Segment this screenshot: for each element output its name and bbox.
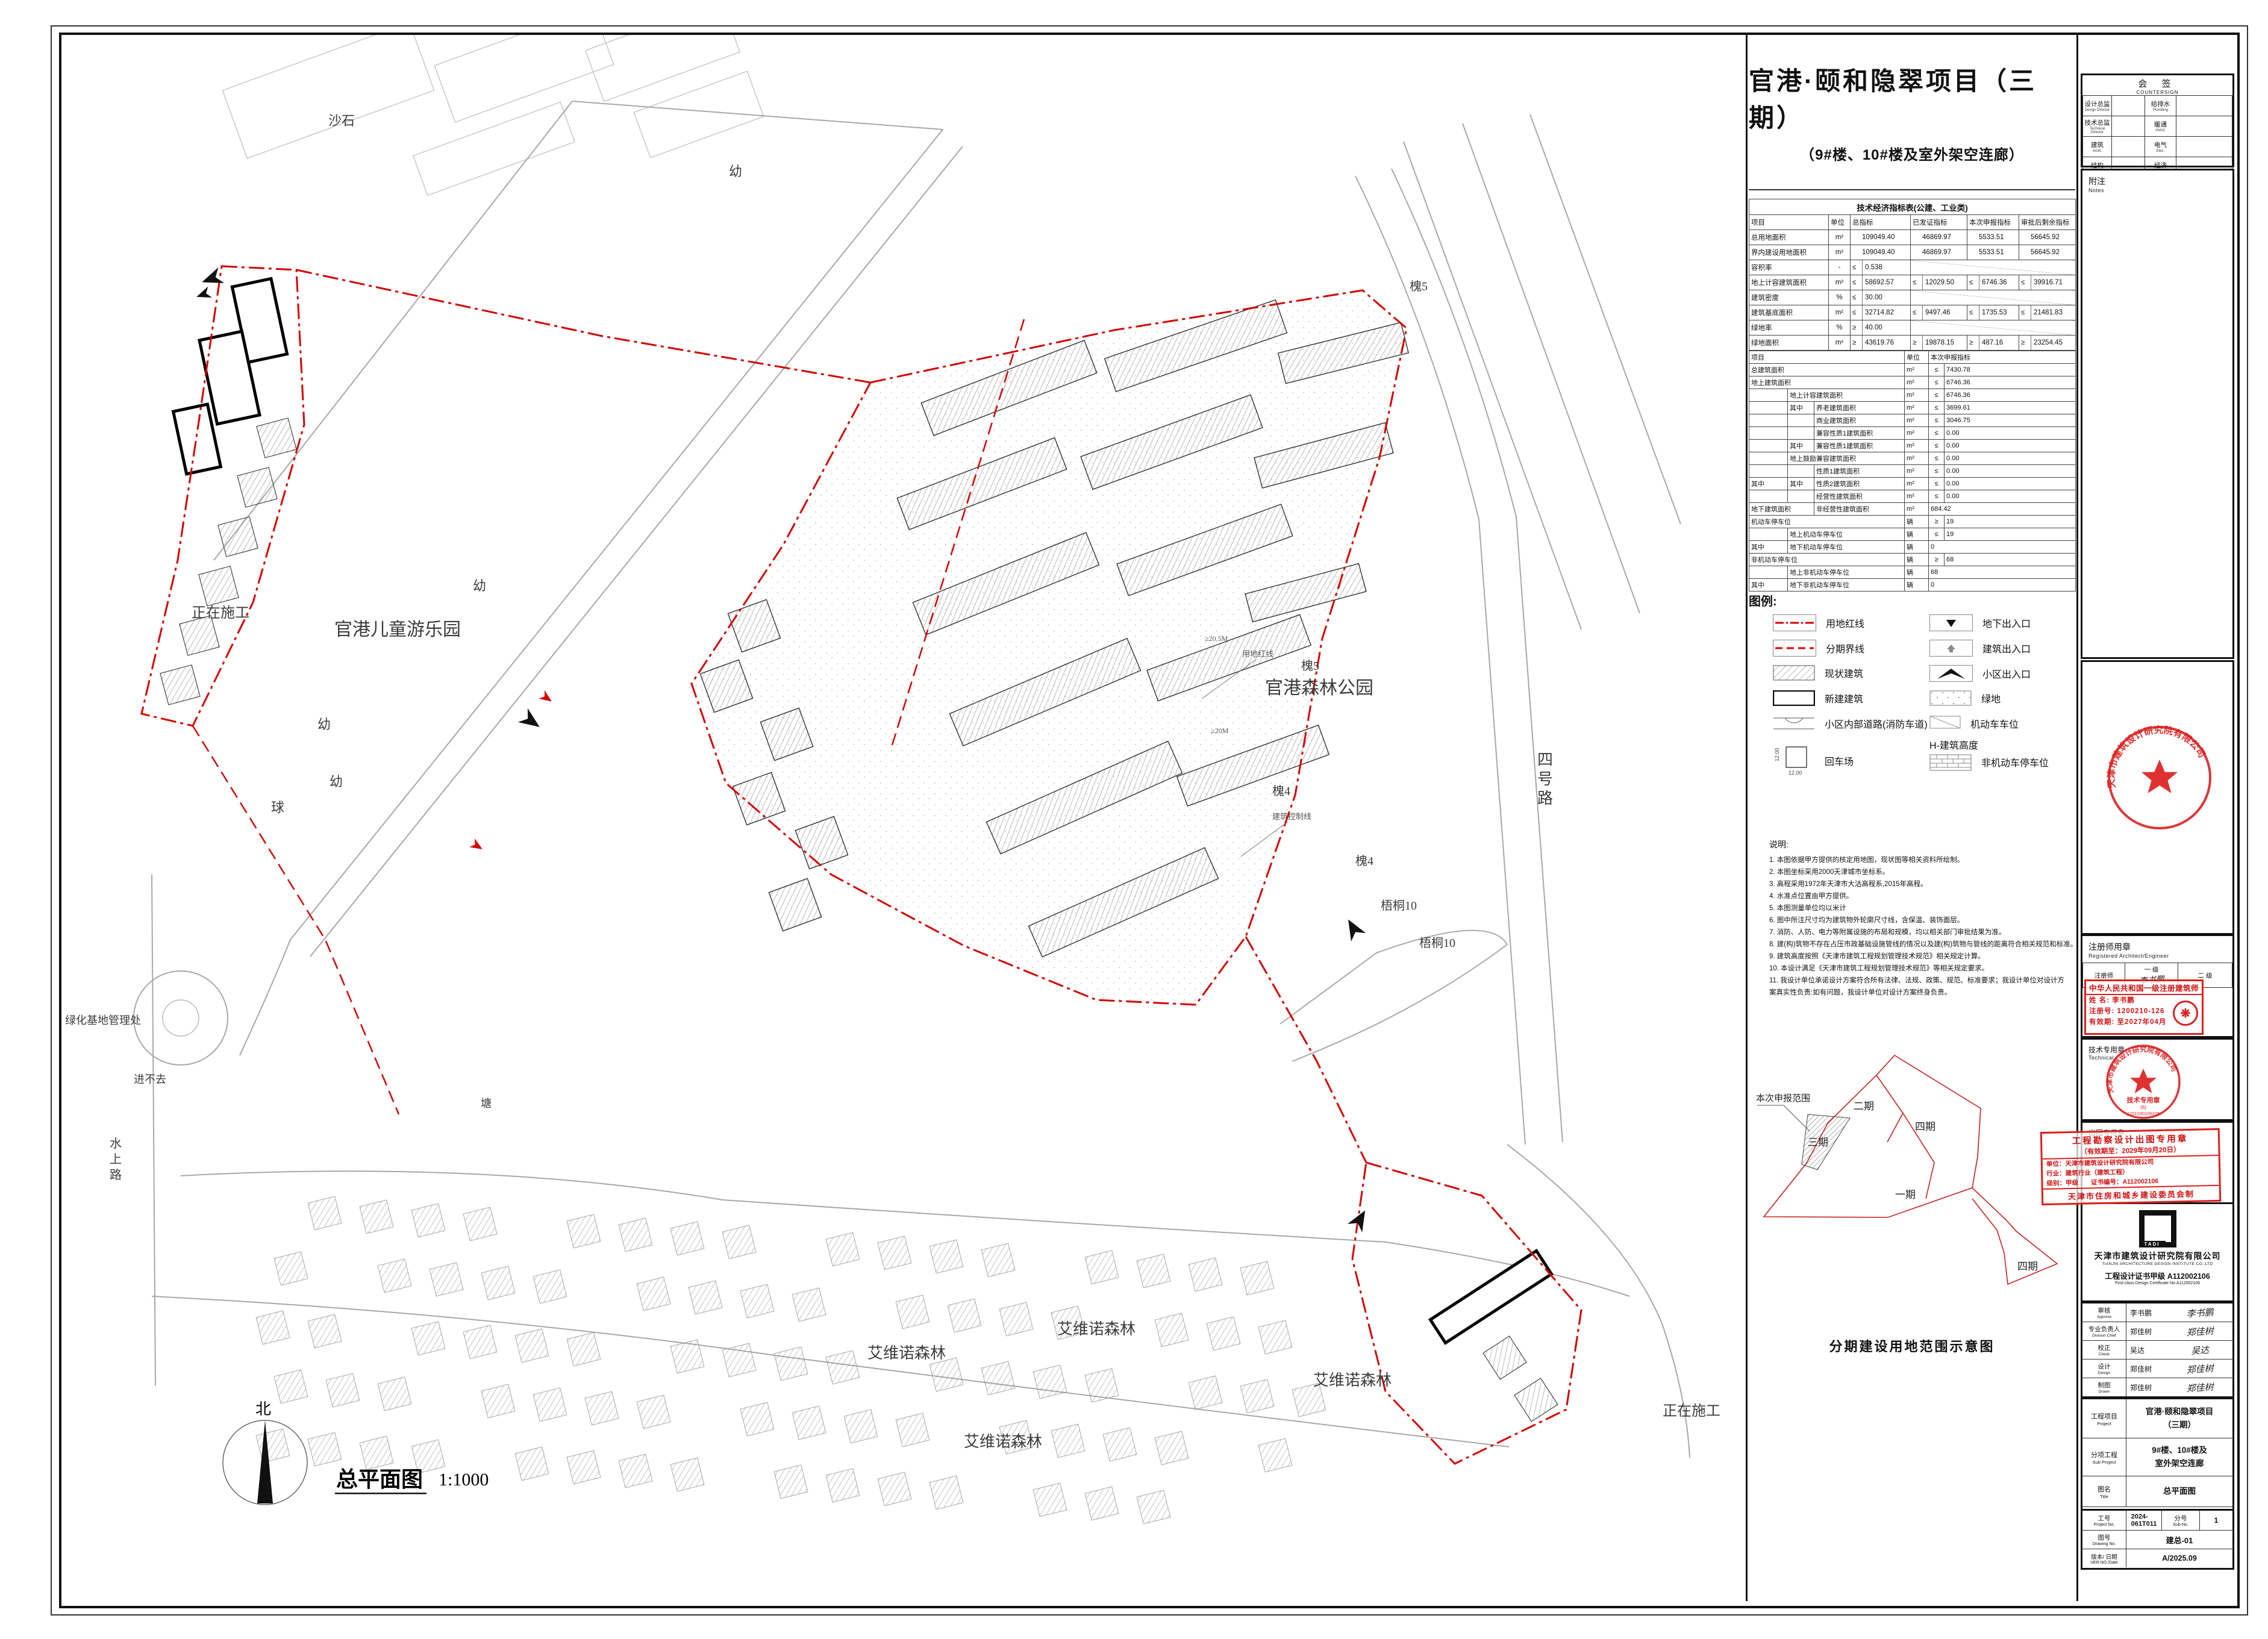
company-block: TADI 天津市建筑设计研究院有限公司 TIANJIN ARCHITECTURE… [2081,1202,2234,1302]
map-label: 艾维诺森林 [1313,1372,1392,1389]
company-cert-cn: 工程设计证书甲级 A112002106 [2082,1270,2232,1281]
countersign-row: 设计总监Design Director给排水Plumbing [2083,96,2232,116]
phase-diagram: 本次申报范围 二期 四期 三期 一期 四期 [1748,1054,2076,1331]
note-item: 2. 本图坐标采用2000天津城市坐标系。 [1769,866,2071,878]
north-label: 北 [255,1400,271,1418]
phase-label: 四期 [1915,1121,1935,1132]
note-item: 10. 本设计满足《天津市建筑工程规划管理技术规范》等相关规定要求。 [1769,963,2071,975]
indicator-row: 其中养老建筑面积m²≤3699.61 [1749,402,2076,414]
map-label: ≥20M [1211,726,1229,735]
project-info-row: 分项工程Sub Project9#楼、10#楼及室外架空连廊 [2082,1438,2232,1476]
svg-text:12.00: 12.00 [1774,748,1780,761]
indicator-row: 其中地下机动车停车位辆0 [1749,541,2076,554]
indicator-row: 绿地面积m²≥43619.76≥19878.15≥487.16≥23254.45 [1749,336,2076,351]
legend-item: 机动车车位 [1929,716,2019,731]
indicator-table-title: 技术经济指标表(公建、工业类) [1749,199,2076,215]
indicator-row: 地上非机动车停车位辆68 [1749,566,2076,579]
title-block-column: 会 签 COUNTERSIGN 设计总监Design Director给排水Pl… [2078,35,2237,1601]
turnaround-icon: 12.00 12.00 [1773,743,1815,778]
signatures-block: 审核Approve李书鹏李书鹏专业负责人Division Chief郑佳树郑佳树… [2081,1302,2234,1399]
note-item: 9. 建筑高度按照《天津市建筑工程规划管理技术规范》相关规定计算。 [1769,951,2071,963]
project-info-row: 图名Title总平面图 [2082,1476,2232,1507]
indicator-header: 已发证指标 [1911,215,1967,230]
note-item: 8. 建(构)筑物不存在占压市政基础设施管线的情况以及建(构)筑物与管线的距离符… [1769,938,2071,951]
legend-item: 现状建筑 [1773,665,1863,681]
project-no-label: 工号Project No. [2082,1511,2126,1530]
map-label: 槐5 [1410,279,1428,293]
map-label: 水上路 [110,1137,122,1182]
map-label: 槐4 [1355,854,1373,868]
green-space-icon [1929,690,1972,706]
countersign-row: 建筑Archi.电气Elec. [2083,137,2232,157]
indicator-row: 地下建筑面积非经营性建筑面积m²684.42 [1749,503,2076,516]
indicator-header: 本次申报指标 [1929,351,2076,364]
indicator-header: 项目 [1749,351,1905,364]
map-label: 进不去 [134,1073,166,1085]
indicator-header: 项目 [1749,215,1829,230]
sub-no-value: 1 [2200,1511,2232,1530]
annex-label-en: Notes [2088,187,2232,193]
map-label: 建筑控制线 [1272,812,1311,821]
countersign-row: 技术总监Technical Director暖通HVAC [2083,116,2232,137]
phase-diagram-caption: 分期建设用地范围示意图 [1749,1336,2075,1355]
indicator-row: 绿地率%≥40.00 [1749,320,2076,336]
legend-item: 建筑出入口 [1929,640,2031,657]
indicator-row: 商业建筑面积m²≤3046.75 [1749,414,2076,427]
map-label: 沙石 [328,113,355,128]
internal-road-icon [1773,716,1815,731]
map-label: 槐4 [1272,784,1290,798]
indicator-row: 地上机动车停车位辆≤19 [1749,528,2076,541]
map-label: 四号路 [1537,751,1553,807]
indicator-row: 界内建设用地面积m²109049.4046869.975533.5156645.… [1749,245,2076,260]
legend-item: 12.00 12.00 回车场 [1773,743,1854,778]
legend-item: H-建筑高度 [1929,737,1978,752]
project-title: 官港·颐和隐翠项目（三期） [1749,61,2075,134]
countersign-title-en: COUNTERSIGN [2082,90,2232,95]
svg-text:技术专用章: 技术专用章 [2127,1096,2160,1104]
indicator-row: 非机动车停车位辆≥68 [1749,554,2076,566]
architect-emblem-icon: ❋ [2173,1001,2198,1026]
note-item: 6. 图中所注尺寸均为建筑物外轮廓尺寸线，含保温、装饰面层。 [1769,914,2071,926]
legend-label: 小区内部道路(消防车道) [1825,716,1928,731]
map-label: 球 [271,800,284,815]
existing-building-icon [1773,665,1815,681]
svg-text:1201030106278: 1201030106278 [2127,1111,2160,1116]
issue-permit-stamp: 工程勘察设计出图专用章 （有效期至：2029年09月20日） 单位：天津市建筑设… [2040,1128,2221,1205]
indicator-header: 单位 [1829,215,1851,230]
phase-label: 四期 [2017,1261,2038,1272]
indicator-header: 本次申报指标 [1967,215,2019,230]
notes-annex-block: 附注 Notes [2081,169,2234,659]
map-label: 用地红线 [1242,649,1273,658]
entrance-chevron-icon [1341,916,1366,941]
notes-block: 说明: 1. 本图依据甲方提供的核定用地图，现状图等相关资料所绘制。2. 本图坐… [1749,838,2071,999]
annex-label: 附注 [2088,175,2232,187]
indicator-row: 经营性建筑面积m²≤0.00 [1749,490,2076,503]
legend-label: 非机动车停车位 [1981,755,2049,769]
project-no-value: 2024- 061T011 [2126,1511,2162,1530]
project-info-row: 工程项目Project官港·颐和隐翠项目（三期） [2082,1399,2232,1438]
parking-space-icon [1929,716,1961,731]
map-title: 总平面图 [336,1467,423,1491]
countersign-block: 会 签 COUNTERSIGN 设计总监Design Director给排水Pl… [2081,73,2234,167]
drawing-no-label: 图号Drawing No. [2082,1531,2126,1549]
legend: 图例: 用地红线 分期界线 现状建筑 新建建筑 小区内部道路(消防车道) 12.… [1749,592,2075,832]
project-subtitle: （9#楼、10#楼及室外架空连廊） [1800,143,2024,164]
site-plan-map: 沙石正在施工官港儿童游乐园幼幼幼球幼官港森林公园槐5槐5槐4槐4梧桐10梧桐10… [61,35,1745,1601]
indicator-row: 总建筑面积m²≤7430.78 [1749,364,2076,376]
entrance-chevron-icon [539,690,554,705]
technical-round-seal: 天津市建筑设计研究院有限公司 技术专用章 (6) 1201030106278 [2082,1040,2232,1119]
legend-label: 绿地 [1981,691,2001,705]
legend-item: 绿地 [1929,690,2001,706]
note-item: 4. 水准点位置由甲方提供。 [1769,890,2071,902]
version-label: 版本/ 日期VER.NO./Date [2082,1549,2126,1567]
indicator-row: 地上计容建筑面积m²≤58692.57≤12029.50≤6746.36≤399… [1749,275,2076,290]
legend-label: 现状建筑 [1825,666,1863,680]
legend-title: 图例: [1749,592,2075,609]
indicator-header: 单位 [1905,351,1929,364]
svg-text:(6): (6) [2140,1105,2146,1110]
legend-item: 地下出入口 [1929,614,2031,631]
legend-label: 地下出入口 [1982,616,2031,630]
company-name-cn: 天津市建筑设计研究院有限公司 [2082,1250,2232,1262]
legend-label: 建筑出入口 [1982,641,2031,655]
map-label: 槐5 [1301,659,1319,673]
signature-row: 审核Approve李书鹏李书鹏 [2082,1303,2232,1322]
legend-item: 小区内部道路(消防车道) [1773,716,1928,731]
legend-item: 非机动车停车位 [1929,754,2049,770]
phase-label: 本次申报范围 [1756,1093,1810,1104]
technical-seal-block: 技术专用章 Technical 天津市建筑设计研究院有限公司 技术专用章 (6)… [2081,1038,2234,1121]
notes-title: 说明: [1769,838,2071,851]
handwritten-signature: 郑佳树 [2167,1376,2233,1398]
entrance-chevron-icon [199,267,224,290]
phase-label: 二期 [1854,1100,1874,1112]
map-label: 艾维诺森林 [1057,1320,1136,1338]
sub-no-label: 分号Sub-No. [2162,1511,2200,1530]
indicator-row: 兼容性质1建筑面积m²≤0.00 [1749,427,2076,440]
entrance-chevron-icon [1348,1207,1372,1232]
legend-label: H-建筑高度 [1929,737,1978,752]
technical-indicator-table: 技术经济指标表(公建、工业类)项目单位总指标已发证指标本次申报指标审批后剩余指标… [1749,199,2075,592]
indicator-row: 地上鼓励兼容建筑面积m²≤0.00 [1749,452,2076,465]
indicator-row: 地上计容建筑面积m²≤6746.36 [1749,389,2076,402]
indicator-row: 容积率-≤0.538 [1749,260,2076,275]
legend-label: 用地红线 [1826,616,1864,630]
map-label: 绿化基地管理处 [65,1014,141,1026]
map-label: ≥20.5M [1205,634,1228,643]
entrance-chevron-icon [195,287,212,303]
bicycle-parking-icon [1929,754,1972,770]
map-label: 艾维诺森林 [964,1433,1042,1450]
legend-item: 新建建筑 [1773,690,1863,706]
phase-label: 一期 [1895,1189,1916,1200]
note-item: 11. 我设计单位承诺设计方案符合所有法律、法规、政策、规范、标准要求；我设计单… [1769,975,2070,999]
red-dash-line-icon [1773,640,1816,657]
map-label: 梧桐10 [1381,899,1417,913]
map-label: 幼 [330,774,343,789]
company-name-en: TIANJIN ARCHITECTURE DESIGN INSTITUTE CO… [2082,1262,2232,1266]
legend-label: 回车场 [1825,754,1854,768]
map-label: 官港儿童游乐园 [334,620,461,640]
legend-label: 新建建筑 [1825,691,1863,705]
entrance-chevron-icon [469,838,485,854]
indicator-row: 其中兼容性质1建筑面积m²≤0.00 [1749,440,2076,452]
drawing-no-value: 建总-01 [2126,1531,2232,1549]
signature-row: 校正Check吴达吴达 [2082,1341,2232,1360]
new-building-icon [1773,690,1815,706]
entrance-chevron-icon [518,708,545,734]
indicator-row: 机动车停车位辆≥19 [1749,516,2076,528]
legend-item: 用地红线 [1773,614,1864,631]
map-label: 幼 [317,717,331,732]
registered-label-en: Registered Architect/Engineer [2088,953,2232,959]
indicator-row: 建筑基底面积m²≤32714.82≤9497.46≤1735.53≤21481.… [1749,305,2076,320]
note-item: 5. 本图测量单位均以米计 [1769,902,2071,914]
map-label: 塘 [481,1097,492,1110]
indicator-row: 建筑密度%≤30.00 [1749,290,2076,305]
red-dashdot-line-icon [1773,614,1816,631]
map-label: 幼 [729,164,742,179]
indicator-row: 其中地下非机动车停车位辆0 [1749,579,2076,592]
map-label: 艾维诺森林 [867,1344,946,1362]
countersign-title: 会 签 [2082,77,2232,90]
legend-item: 小区出入口 [1929,665,2031,682]
map-label: 官港森林公园 [1265,678,1373,698]
indicator-row: 性质1建筑面积m²≤0.00 [1749,465,2076,478]
legend-label: 小区出入口 [1982,666,2031,681]
tadi-logo: TADI [2139,1210,2176,1247]
indicator-header: 审批后剩余指标 [2019,215,2076,230]
legend-label: 机动车车位 [1970,716,2019,731]
phase-label: 三期 [1808,1137,1828,1148]
indicator-row: 总用地面积m²109049.4046869.975533.5156645.92 [1749,230,2076,245]
svg-text:12.00: 12.00 [1788,770,1802,776]
map-scale: 1:1000 [439,1470,489,1490]
signature-row: 专业负责人Division Chief郑佳树郑佳树 [2082,1322,2232,1341]
underground-entry-icon [1929,614,1973,631]
signature-row: 制图Drawn郑佳树郑佳树 [2082,1378,2232,1397]
map-label: 梧桐10 [1419,936,1455,950]
community-entry-icon [1929,665,1973,682]
version-value: A/2025.09 [2126,1549,2232,1567]
registered-label: 注册师用章 [2088,941,2232,953]
map-label: 正在施工 [1663,1403,1720,1419]
drawing-title-block: 官港·颐和隐翠项目（三期） （9#楼、10#楼及室外架空连廊） [1749,35,2075,190]
architect-registration-stamp: 中华人民共和国一级注册建筑师 姓 名: 李书鹏 注册号: 1200210-126… [2084,979,2204,1035]
signature-row: 设计Design郑佳树郑佳树 [2082,1360,2232,1378]
company-cert-en: First-class Design Certificate No.A11200… [2082,1281,2232,1285]
note-item: 3. 高程采用1972年天津市大沽高程系,2015年高程。 [1769,878,2071,890]
project-info-block: 工程项目Project官港·颐和隐翠项目（三期）分项工程Sub Project9… [2081,1397,2234,1511]
note-item: 1. 本图依据甲方提供的核定用地图，现状图等相关资料所绘制。 [1769,854,2071,866]
indicator-row: 地上建筑面积m²≤6746.36 [1749,376,2076,389]
legend-item: 分期界线 [1773,640,1864,657]
qualification-seal-block: 天津市建筑设计研究院有限公司 [2081,660,2234,935]
numbers-block: 工号Project No. 2024- 061T011 分号Sub-No. 1 … [2081,1509,2234,1570]
map-label: 幼 [473,578,486,593]
indicator-header: 总指标 [1851,215,1911,230]
note-item: 7. 消防、人防、电力等附属设施的布局和规模，均以相关部门审批结果为准。 [1769,926,2071,938]
company-round-seal: 天津市建筑设计研究院有限公司 [2082,662,2232,929]
indicator-row: 其中其中性质2建筑面积m²≤0.00 [1749,478,2076,490]
building-entry-icon [1929,640,1973,657]
legend-label: 分期界线 [1826,641,1864,655]
column-divider [1746,35,1748,1601]
map-label: 正在施工 [192,605,249,621]
